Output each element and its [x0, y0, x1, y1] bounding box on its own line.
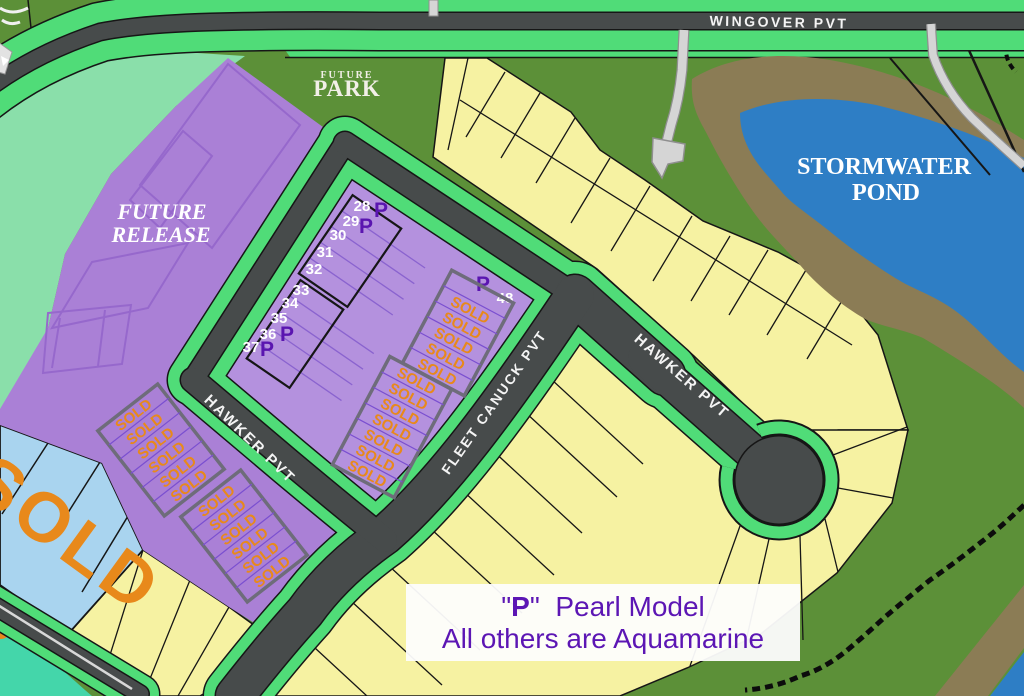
svg-text:P: P	[280, 323, 294, 346]
svg-text:PARK: PARK	[313, 76, 380, 101]
svg-text:30: 30	[330, 227, 347, 244]
svg-text:FUTURE: FUTURE	[116, 199, 206, 224]
svg-text:WINGOVER PVT: WINGOVER PVT	[709, 13, 848, 32]
svg-text:31: 31	[317, 244, 334, 261]
svg-text:32: 32	[306, 261, 323, 278]
svg-text:P: P	[359, 215, 373, 238]
svg-text:All others are Aquamarine: All others are Aquamarine	[442, 623, 764, 654]
svg-text:P: P	[260, 338, 274, 361]
svg-text:STORMWATER: STORMWATER	[797, 154, 971, 180]
svg-text:POND: POND	[852, 180, 920, 206]
svg-text:RELEASE: RELEASE	[110, 222, 210, 247]
svg-text:"P" Pearl Model: "P" Pearl Model	[501, 591, 705, 622]
svg-text:P: P	[374, 199, 388, 222]
svg-text:37: 37	[243, 339, 260, 356]
